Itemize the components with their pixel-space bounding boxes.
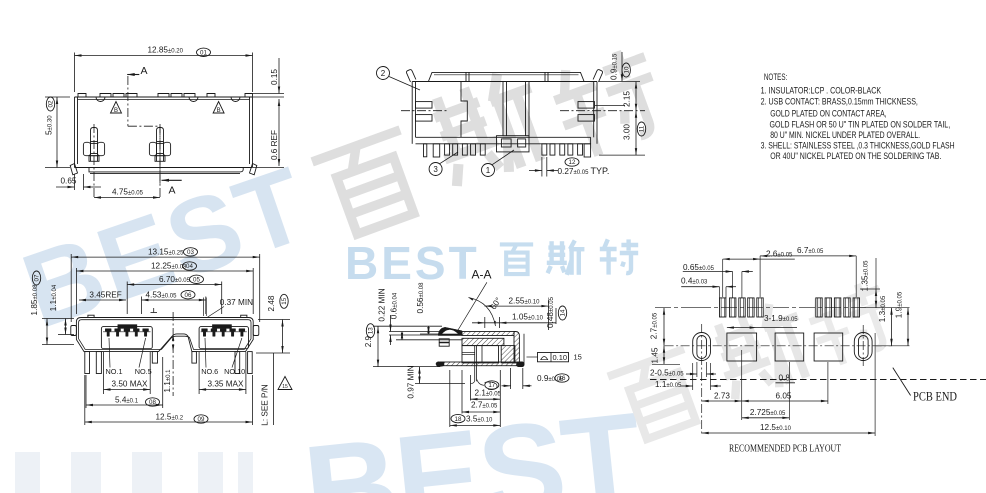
svg-text:GOLD FLASH OR 50 U" TIN PLATED: GOLD FLASH OR 50 U" TIN PLATED ON SOLDER…	[770, 120, 951, 130]
svg-text:06: 06	[185, 292, 192, 299]
svg-text:2: 2	[381, 69, 386, 78]
svg-text:15: 15	[574, 352, 582, 361]
svg-text:1. INSULATOR:LCP . COLOR-BLACK: 1. INSULATOR:LCP . COLOR-BLACK	[761, 85, 882, 95]
svg-text:01: 01	[200, 50, 207, 57]
svg-text:13: 13	[368, 327, 375, 334]
svg-text:0.97 MIN: 0.97 MIN	[407, 365, 416, 398]
svg-text:B: B	[114, 108, 118, 114]
svg-text:04: 04	[186, 263, 193, 270]
svg-text:PCB END: PCB END	[913, 389, 957, 404]
svg-text:3.35 MAX: 3.35 MAX	[208, 380, 244, 389]
svg-text:15: 15	[281, 297, 288, 304]
svg-text:TYP.: TYP.	[591, 166, 610, 176]
svg-text:11: 11	[639, 125, 646, 132]
svg-text:GOLD PLATED ON CONTACT AREA,: GOLD PLATED ON CONTACT AREA,	[770, 108, 886, 118]
svg-text:NO.1: NO.1	[106, 367, 123, 376]
svg-text:3.50 MAX: 3.50 MAX	[112, 380, 148, 389]
svg-text:14: 14	[560, 309, 567, 316]
svg-text:09: 09	[198, 416, 205, 423]
svg-text:02: 02	[48, 100, 55, 107]
svg-text:0.65: 0.65	[61, 177, 77, 186]
svg-text:3.45REF: 3.45REF	[89, 290, 121, 299]
svg-text:3: 3	[433, 165, 438, 174]
svg-text:1.45: 1.45	[651, 347, 660, 363]
svg-text:18: 18	[455, 416, 462, 423]
svg-text:0.22 MIN: 0.22 MIN	[378, 288, 387, 321]
svg-text:15: 15	[282, 384, 288, 390]
svg-text:12: 12	[569, 159, 576, 166]
svg-text:05: 05	[193, 277, 200, 284]
svg-text:NOTES:: NOTES:	[764, 72, 787, 82]
svg-text:0.37 MIN: 0.37 MIN	[220, 298, 253, 307]
svg-text:0.8: 0.8	[779, 373, 791, 382]
svg-text:6.05: 6.05	[776, 391, 792, 400]
svg-text:BEST: BEST	[345, 237, 480, 289]
svg-text:2.15: 2.15	[623, 91, 632, 107]
svg-text:08: 08	[149, 399, 156, 406]
svg-text:0.10: 0.10	[553, 353, 568, 362]
svg-text:3. SHELL: STAINLESS STEEL ,0.3: 3. SHELL: STAINLESS STEEL ,0.3 THICKNESS…	[761, 141, 955, 151]
svg-text:OR 40U" NICKEL PLATED ON THE S: OR 40U" NICKEL PLATED ON THE SOLDERING T…	[770, 151, 941, 161]
svg-text:NO.5: NO.5	[135, 367, 152, 376]
svg-text:NO.10: NO.10	[224, 367, 245, 376]
svg-text:NO.6: NO.6	[201, 367, 218, 376]
svg-text:3.00: 3.00	[623, 124, 632, 140]
svg-text:07: 07	[34, 274, 41, 281]
svg-text:A: A	[169, 185, 176, 197]
svg-text:03: 03	[187, 249, 194, 256]
svg-text:10: 10	[623, 66, 630, 73]
svg-text:L: SEE P/N: L: SEE P/N	[261, 384, 270, 425]
svg-text:2. USB CONTACT: BRASS,0.15mm T: 2. USB CONTACT: BRASS,0.15mm THICKNESS,	[761, 97, 918, 107]
svg-text:17: 17	[488, 382, 495, 389]
svg-text:1: 1	[486, 166, 491, 175]
svg-text:0.15: 0.15	[270, 69, 279, 85]
svg-text:16: 16	[559, 375, 566, 382]
svg-text:A: A	[141, 65, 148, 77]
svg-text:2.48: 2.48	[267, 295, 276, 311]
svg-text:A-A: A-A	[472, 268, 492, 282]
svg-text:B: B	[217, 108, 221, 114]
svg-text:80 U" MIN. NICKEL UNDER PLATED: 80 U" MIN. NICKEL UNDER PLATED OVERALL.	[770, 130, 920, 140]
svg-text:0.6 REF: 0.6 REF	[270, 130, 279, 160]
svg-text:2.73: 2.73	[714, 391, 730, 400]
svg-text:RECOMMENDED PCB LAYOUT: RECOMMENDED PCB LAYOUT	[729, 444, 841, 455]
